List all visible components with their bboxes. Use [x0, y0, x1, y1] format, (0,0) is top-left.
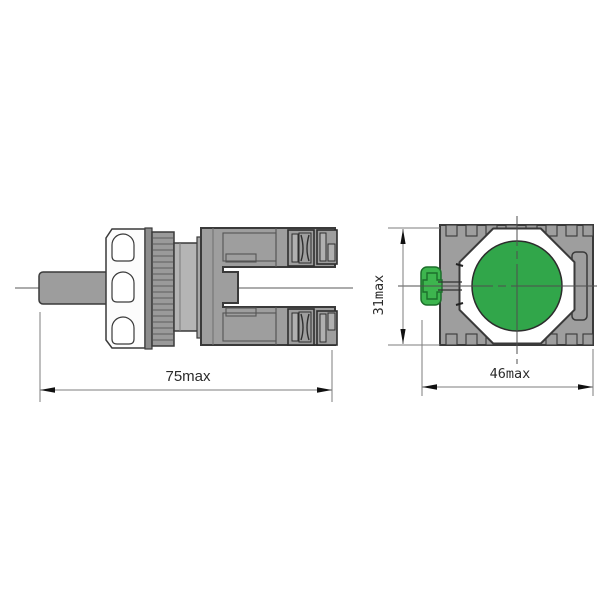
mounting-nut [152, 232, 174, 346]
mounting-nut-body [152, 232, 174, 346]
plunger-shaft [39, 272, 110, 304]
head-lobe-middle [112, 272, 134, 302]
pushbutton-technical-drawing: 75max [0, 0, 600, 600]
front-view: 31max 46max [371, 216, 597, 396]
dimension-label-75max: 75max [165, 368, 211, 385]
head-lobe-bottom [112, 317, 134, 344]
washer-flange [145, 228, 152, 349]
arrowhead-bottom [400, 329, 405, 344]
head-lobe-top [112, 234, 134, 261]
arrowhead-left [40, 387, 55, 392]
arrowhead-left [422, 384, 437, 389]
dimension-label-46max: 46max [490, 366, 531, 382]
barrel-cylinder [174, 243, 198, 331]
switch-body-side [201, 228, 335, 345]
arrowhead-top [400, 229, 405, 244]
arrowhead-right [317, 387, 332, 392]
arrowhead-right [578, 384, 593, 389]
side-view: 75max [15, 228, 353, 402]
dimension-label-31max: 31max [371, 275, 387, 316]
technical-drawing-page: 75max [0, 0, 600, 600]
